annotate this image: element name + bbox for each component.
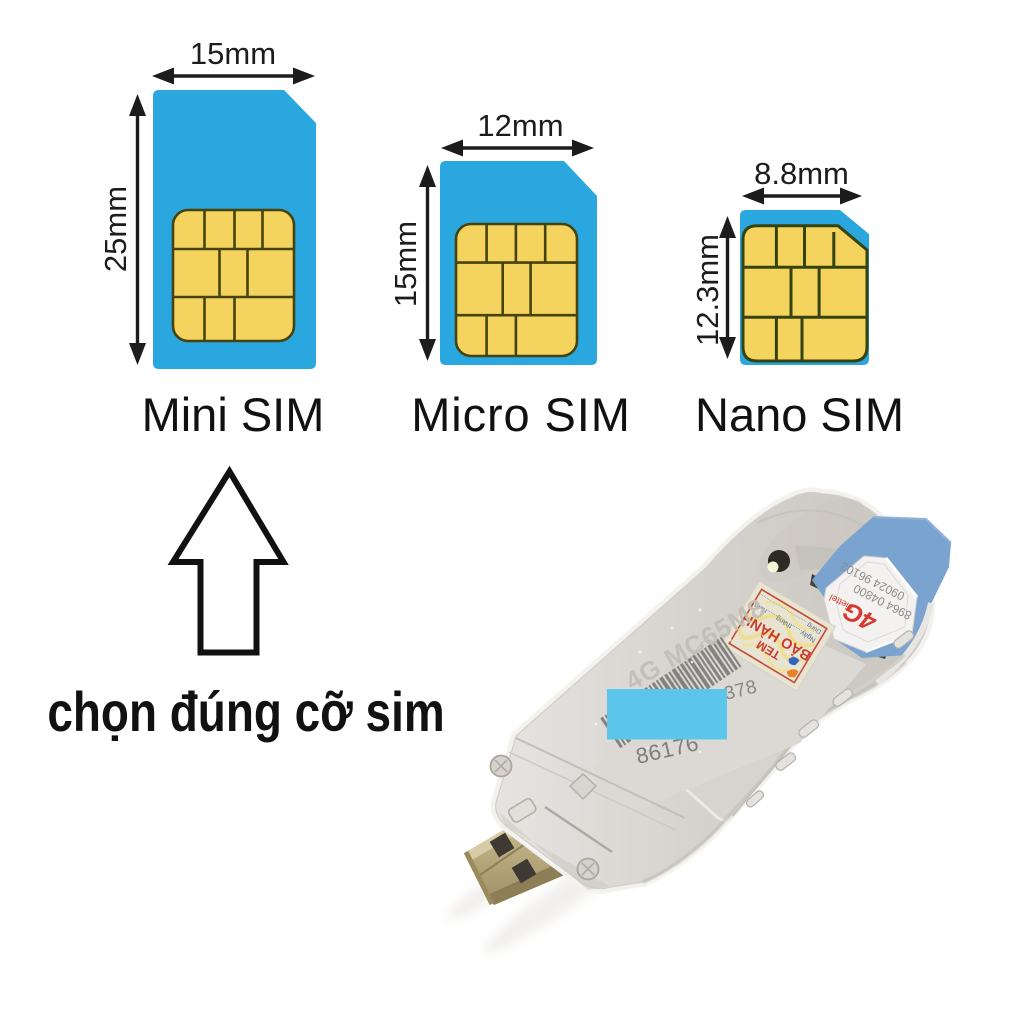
svg-text:15mm: 15mm — [190, 36, 276, 71]
svg-text:15mm: 15mm — [388, 221, 423, 307]
svg-text:Nano SIM: Nano SIM — [695, 388, 904, 441]
svg-text:12mm: 12mm — [477, 108, 563, 143]
svg-text:12.3mm: 12.3mm — [690, 234, 725, 346]
svg-text:chọn đúng cỡ sim: chọn đúng cỡ sim — [47, 681, 444, 743]
svg-text:Micro SIM: Micro SIM — [411, 388, 631, 441]
svg-text:Mini SIM: Mini SIM — [142, 388, 325, 441]
svg-text:8.8mm: 8.8mm — [754, 156, 849, 191]
svg-text:25mm: 25mm — [98, 186, 133, 272]
